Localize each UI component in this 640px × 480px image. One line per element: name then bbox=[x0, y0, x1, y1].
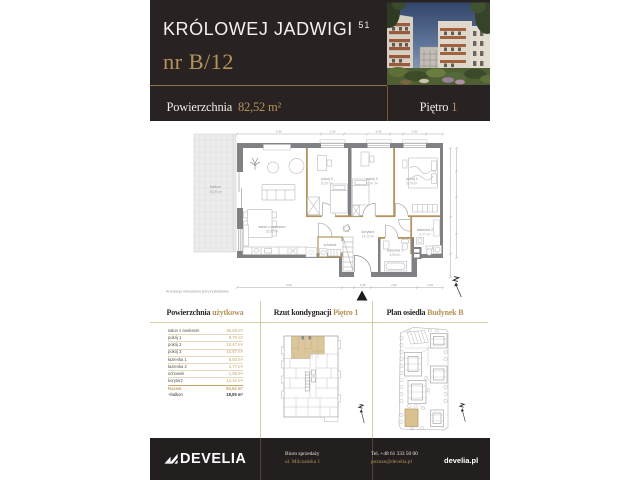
svg-text:2,60: 2,60 bbox=[412, 130, 418, 134]
svg-text:2,92: 2,92 bbox=[391, 283, 397, 287]
svg-text:6,62: 6,62 bbox=[286, 283, 292, 287]
svg-text:4,77 m²: 4,77 m² bbox=[420, 232, 431, 236]
svg-text:balkon: balkon bbox=[210, 185, 221, 189]
svg-text:pokój 1: pokój 1 bbox=[406, 177, 418, 181]
svg-text:schowek: schowek bbox=[324, 243, 337, 247]
svg-text:salon z aneksem: salon z aneksem bbox=[259, 225, 286, 229]
svg-text:Aranżacja mieszkania jest przy: Aranżacja mieszkania jest przykładowa bbox=[166, 290, 229, 294]
svg-text:korytarz: korytarz bbox=[362, 230, 375, 234]
svg-text:1,64: 1,64 bbox=[427, 283, 433, 287]
svg-text:pokój 3: pokój 3 bbox=[321, 177, 333, 181]
svg-text:pokój 2: pokój 2 bbox=[366, 177, 378, 181]
svg-text:10,47 m²: 10,47 m² bbox=[366, 182, 379, 186]
svg-text:3,55: 3,55 bbox=[376, 130, 382, 134]
svg-text:18,09 m²: 18,09 m² bbox=[209, 190, 222, 194]
svg-text:10,67 m²: 10,67 m² bbox=[321, 182, 334, 186]
svg-text:25,83 m²: 25,83 m² bbox=[266, 230, 279, 234]
svg-text:9,70 m²: 9,70 m² bbox=[407, 182, 418, 186]
svg-text:14,10 m²: 14,10 m² bbox=[362, 235, 375, 239]
svg-text:5,93 m²: 5,93 m² bbox=[390, 253, 401, 257]
svg-text:2,60: 2,60 bbox=[330, 130, 336, 134]
svg-text:1,08: 1,08 bbox=[360, 283, 366, 287]
svg-text:5,90: 5,90 bbox=[276, 130, 282, 134]
